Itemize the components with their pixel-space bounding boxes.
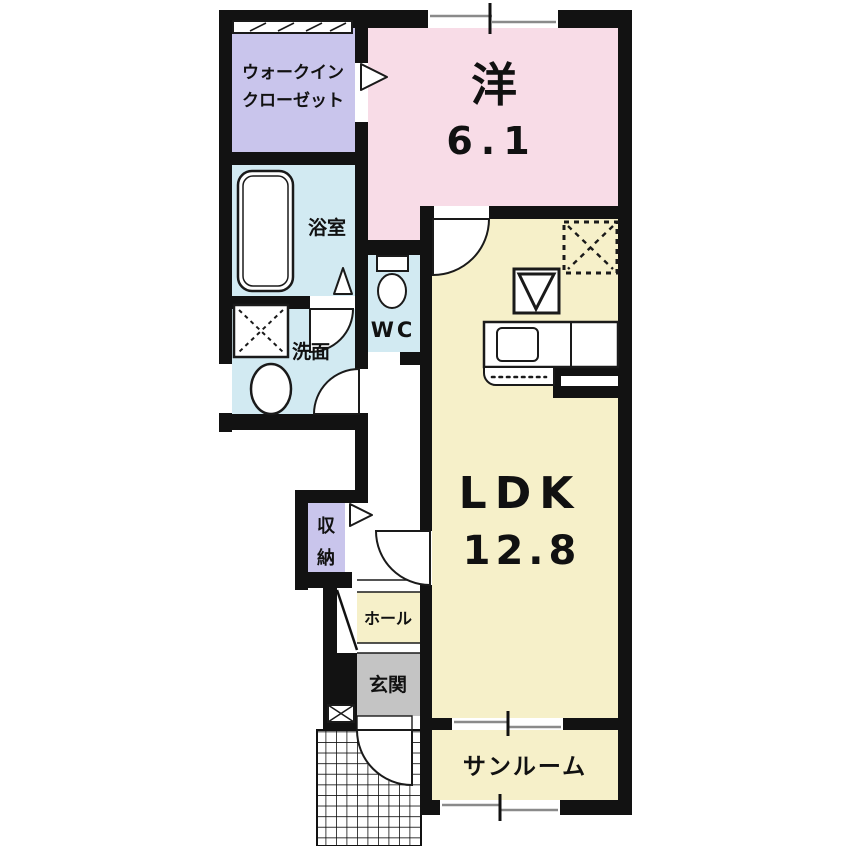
washbasin	[251, 364, 291, 414]
wic-hanger-bar	[233, 21, 352, 33]
wall-sunroom-left	[420, 718, 432, 815]
wc-label: WC	[371, 318, 416, 342]
wall-sunroom-bottom-right	[560, 800, 632, 815]
storage-label-char1: 収	[317, 516, 336, 537]
wall-spine-upper	[355, 28, 368, 63]
washing-machine-pan	[234, 305, 288, 357]
hall-label: ホール	[364, 609, 412, 628]
wall-wic-bottom	[219, 152, 368, 165]
western-room-label: 洋	[471, 58, 517, 112]
walk-in-closet-room	[232, 28, 355, 152]
washroom-label: 洗面	[292, 340, 330, 363]
window-kitchen-slit	[561, 376, 618, 386]
floorplan-drawing: ウォークイン クローゼット 洋 6.1 浴室 洗面 WC LDK 12.8 収 …	[0, 0, 846, 846]
ldk-label: LDK	[459, 468, 582, 519]
entrance-label: 玄関	[369, 673, 407, 696]
window-washroom-left-slit	[219, 364, 232, 413]
entrance-step-sill	[357, 716, 412, 730]
wall-right-exterior	[618, 10, 632, 815]
wall-washroom-bottom	[219, 414, 368, 430]
wall-wc-bottom-right	[400, 352, 432, 365]
wic-label-line2: クローゼット	[242, 90, 344, 111]
wall-wc-bottom-left	[355, 352, 365, 365]
kitchen-sink	[497, 328, 538, 361]
bathroom-label: 浴室	[308, 216, 346, 239]
western-room-size: 6.1	[446, 119, 537, 163]
storage-label-char2: 納	[317, 547, 335, 569]
sunroom-label: サンルーム	[463, 754, 587, 780]
wall-ldk-sunroom-right	[563, 718, 632, 730]
stove	[514, 269, 559, 313]
floorplan-page: ウォークイン クローゼット 洋 6.1 浴室 洗面 WC LDK 12.8 収 …	[0, 0, 846, 846]
wall-storage-bottom	[295, 572, 352, 588]
ldk-size: 12.8	[463, 528, 582, 574]
wic-label-line1: ウォークイン	[242, 63, 344, 83]
wall-entrance-left-upper	[323, 588, 337, 653]
bathtub	[238, 171, 293, 291]
wall-western-bottom-right	[489, 206, 632, 219]
toilet	[377, 256, 408, 308]
wall-hall-right-lower	[420, 585, 432, 718]
window-western-top-opening	[428, 10, 558, 28]
wall-sunroom-bottom-left	[432, 800, 440, 815]
wall-hall-right-upper	[420, 206, 432, 531]
entrance-post-box	[328, 705, 354, 722]
